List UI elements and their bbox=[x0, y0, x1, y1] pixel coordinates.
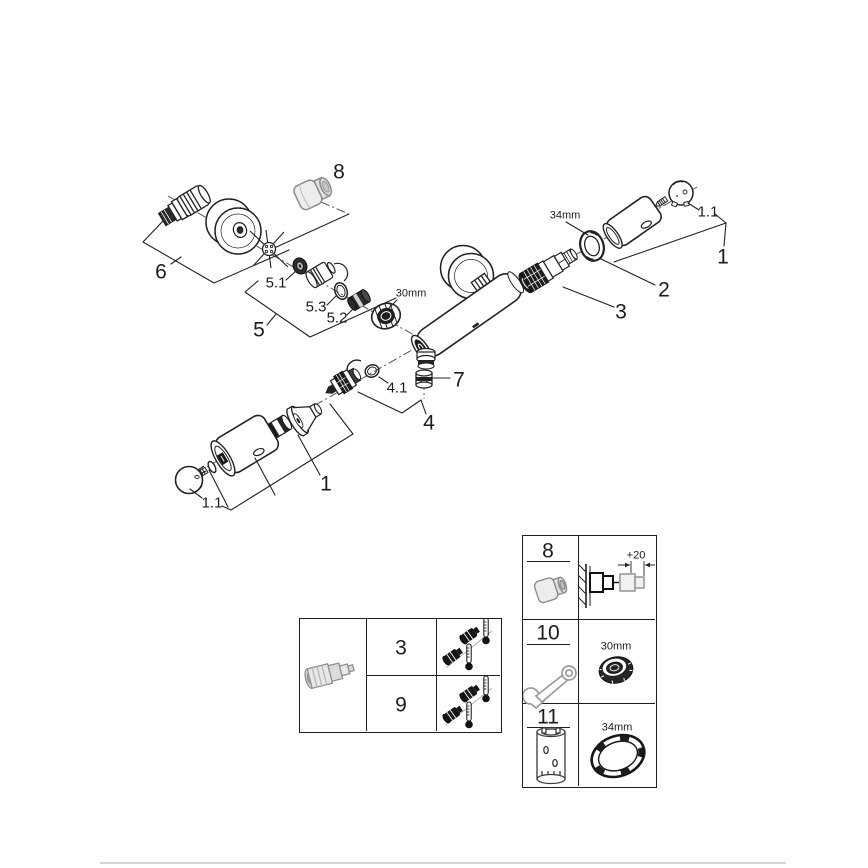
shower-outlet-icon bbox=[417, 349, 435, 370]
insert-5-2-icon bbox=[346, 288, 372, 311]
retainer-hook-icon bbox=[334, 263, 348, 281]
callout-1-1-bottom: 1.1 bbox=[202, 496, 223, 511]
callout-4-1: 4.1 bbox=[387, 381, 408, 396]
cartridge-and-thermometer-icon bbox=[441, 619, 492, 670]
callout-1-right: 1 bbox=[717, 247, 729, 268]
extension-cap-icon bbox=[533, 573, 569, 603]
tools-row-ref: 10 bbox=[536, 623, 559, 644]
ring-nut-34mm-icon bbox=[586, 728, 650, 784]
dome-washer-icon bbox=[284, 394, 328, 438]
size-label-34mm: 34mm bbox=[550, 211, 581, 222]
callout-3: 3 bbox=[615, 302, 627, 323]
dimension-label: +20 bbox=[627, 551, 646, 562]
calibration-row-ref: 9 bbox=[395, 695, 407, 716]
adapter-icon bbox=[304, 259, 338, 289]
check-valve-icon bbox=[321, 364, 364, 401]
page-bottom-divider bbox=[100, 862, 786, 864]
callout-1-1-right: 1.1 bbox=[698, 205, 719, 220]
callout-6: 6 bbox=[155, 262, 167, 283]
cartridge-and-thermometer-icon bbox=[441, 676, 492, 728]
callout-8: 8 bbox=[333, 162, 345, 183]
callout-4: 4 bbox=[423, 413, 435, 434]
size-label: 34mm bbox=[602, 723, 633, 734]
outlet-nut-icon bbox=[416, 370, 432, 388]
calibration-table: 3 9 bbox=[299, 618, 502, 733]
star-seal-icon bbox=[250, 230, 288, 268]
size-label-30mm: 30mm bbox=[396, 289, 427, 300]
tools-row-ref: 11 bbox=[537, 707, 559, 728]
escutcheon-icon bbox=[206, 199, 261, 254]
nut-30mm-icon bbox=[597, 654, 636, 687]
tools-table: 8 +20 10 30mm 11 34mm bbox=[522, 535, 657, 788]
cover-cap-icon bbox=[669, 181, 693, 207]
callout-5-3: 5.3 bbox=[306, 300, 327, 315]
callout-7: 7 bbox=[453, 370, 465, 391]
wall-extension-diagram-icon bbox=[578, 561, 655, 608]
thermostatic-cartridge-icon bbox=[303, 658, 355, 689]
callout-2: 2 bbox=[658, 280, 670, 301]
callout-5-2: 5.2 bbox=[327, 311, 348, 326]
size-label: 30mm bbox=[601, 642, 632, 653]
tools-row-ref: 8 bbox=[542, 541, 554, 562]
grub-screw-icon bbox=[654, 197, 668, 209]
extension-cap-pointer-line bbox=[272, 214, 349, 249]
cartridge-icon bbox=[516, 244, 581, 295]
ring-nut-34mm-icon bbox=[576, 228, 607, 264]
s-union-icon bbox=[157, 183, 213, 229]
grip-cylinder-icon bbox=[600, 194, 664, 252]
callout-5-1: 5.1 bbox=[266, 276, 287, 291]
callout-5: 5 bbox=[253, 320, 265, 341]
spare-parts-diagram-page: 8 6 5.1 5.3 5.2 5 30mm 7 4.1 4 1 1.1 34m… bbox=[0, 0, 868, 868]
callout-1-bottom: 1 bbox=[320, 474, 332, 495]
tools-table-icons bbox=[523, 536, 655, 786]
wrench-icon bbox=[523, 666, 576, 708]
socket-tool-icon bbox=[537, 728, 565, 784]
o-ring-5-3-icon bbox=[332, 281, 349, 301]
nut-30mm-icon bbox=[368, 299, 404, 332]
calibration-row-ref: 3 bbox=[395, 638, 407, 659]
